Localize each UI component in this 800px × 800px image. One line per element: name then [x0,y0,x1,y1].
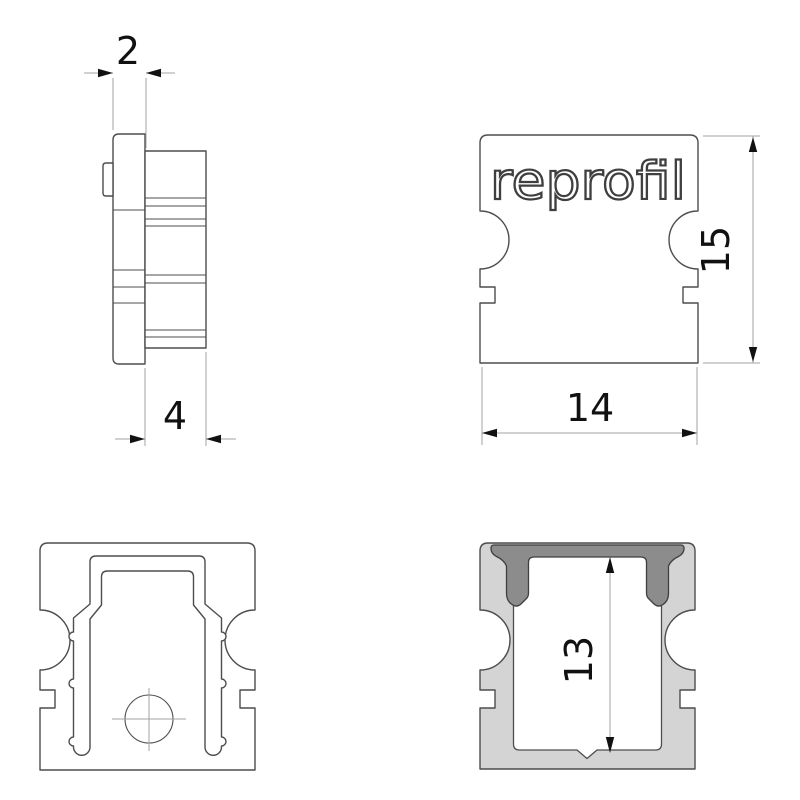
dim-label-inner-height: 13 [557,636,601,684]
insert-body-outline [145,151,206,348]
dim-arrow [482,429,497,437]
dim-arrow [749,137,757,152]
dim-arrow [749,347,757,362]
side-view: 2 4 [84,29,236,446]
dim-arrow [98,69,113,77]
dim-label-total-depth: 4 [163,394,187,438]
dim-arrow [130,435,145,443]
front-view: reprofil 15 14 [480,135,760,445]
technical-drawing-page: 2 4 reprofil 15 [0,0,800,800]
dim-label-width: 14 [566,386,614,430]
cap-tab-outline [103,163,113,196]
back-outline [40,543,255,770]
endcap-technical-drawing: 2 4 reprofil 15 [0,0,800,800]
dimension-height: 15 [694,136,760,363]
dim-arrow [146,69,161,77]
dimension-cap-thickness: 2 [84,29,175,148]
dim-label-height: 15 [694,226,738,274]
dim-arrow [682,429,697,437]
dim-arrow [206,435,221,443]
brand-logo-text: reprofil [490,152,686,212]
back-view [40,543,255,770]
section-view: 13 [480,543,695,769]
cap-plate-outline [113,134,145,364]
dimension-width: 14 [482,367,697,445]
dimension-total-depth: 4 [115,352,236,446]
dim-label-cap-thickness: 2 [116,29,140,73]
